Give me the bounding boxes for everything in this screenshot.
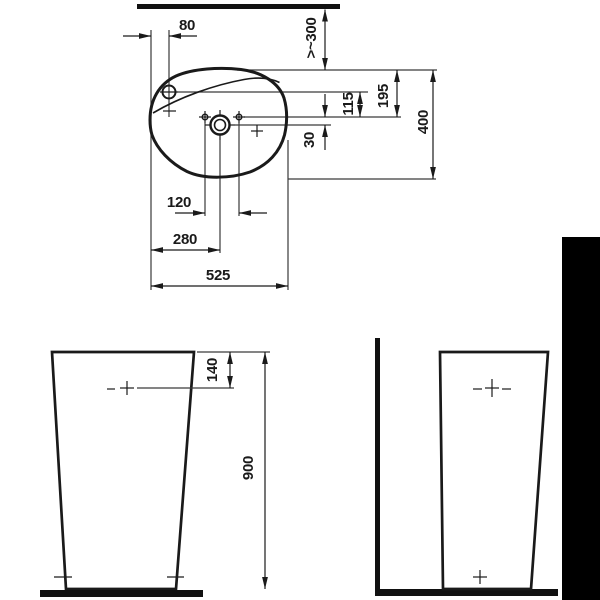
dim-label-30: 30: [302, 108, 318, 172]
washbasin-dimension-drawing: [0, 0, 600, 600]
dim-label-140: 140: [205, 338, 221, 402]
fixing-hole-left: [199, 111, 211, 123]
dim-label-300: >~300: [304, 6, 320, 70]
dim-label-80: 80: [155, 18, 219, 34]
dim-label-400: 400: [416, 90, 432, 154]
reference-cross-plan: [251, 125, 263, 137]
drain-hole: [205, 110, 235, 140]
dim-label-280: 280: [153, 232, 217, 248]
basin-inner-edge: [153, 78, 280, 113]
image-edge-band: [562, 237, 600, 600]
front-tap-mark: [107, 381, 134, 395]
dim-label-115: 115: [341, 72, 357, 136]
dim-label-120: 120: [147, 195, 211, 211]
side-bottom-cross: [473, 570, 487, 584]
fixing-hole-right: [233, 111, 245, 123]
wall-line-side: [375, 338, 380, 595]
plan-extension-lines: [151, 30, 437, 290]
side-tap-mark: [473, 379, 511, 397]
technical-drawing-page: 80 >~300 195 115 30 400 120 280 525 140 …: [0, 0, 600, 600]
front-view: [40, 352, 270, 597]
dim-label-900: 900: [241, 436, 257, 500]
dim-label-525: 525: [186, 268, 250, 284]
dim-label-195: 195: [376, 64, 392, 128]
side-view: [375, 338, 558, 596]
floor-line-front: [40, 590, 203, 597]
